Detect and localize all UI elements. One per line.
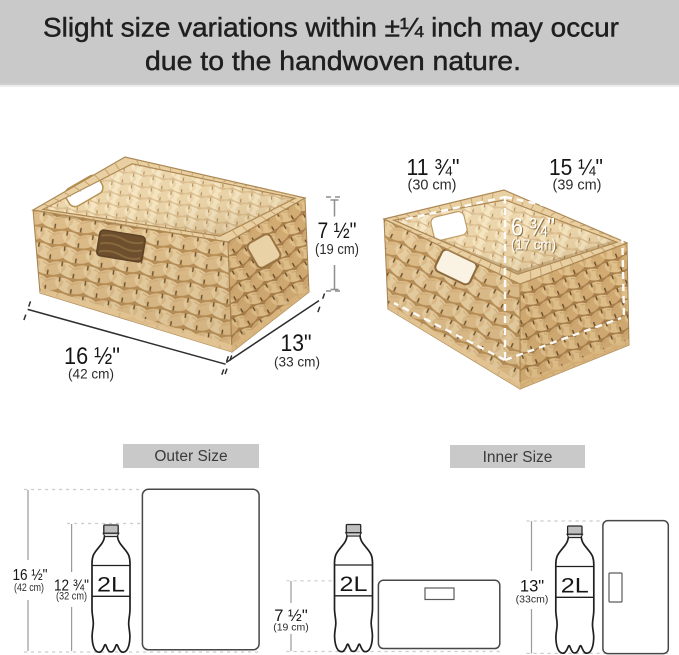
svg-text:Outer Size: Outer Size [154,448,227,465]
svg-text:due to the handwoven nature.: due to the handwoven nature. [145,46,521,76]
svg-text:(33cm): (33cm) [516,594,549,606]
svg-text:(19 cm): (19 cm) [315,242,359,258]
svg-text:Inner Size: Inner Size [483,449,553,466]
svg-text:(30 cm): (30 cm) [408,177,457,194]
svg-text:7 ½": 7 ½" [318,218,357,243]
svg-text:(42 cm): (42 cm) [68,366,114,382]
svg-text:Slight size variations within: Slight size variations within ±¼ inch ma… [43,13,619,43]
svg-text:(17 cm): (17 cm) [511,238,556,254]
svg-text:(42 cm): (42 cm) [14,582,44,594]
svg-text:(33 cm): (33 cm) [274,354,320,370]
svg-text:(39 cm): (39 cm) [553,177,602,194]
svg-text:(32 cm): (32 cm) [56,591,87,603]
svg-text:(19 cm): (19 cm) [273,622,309,634]
